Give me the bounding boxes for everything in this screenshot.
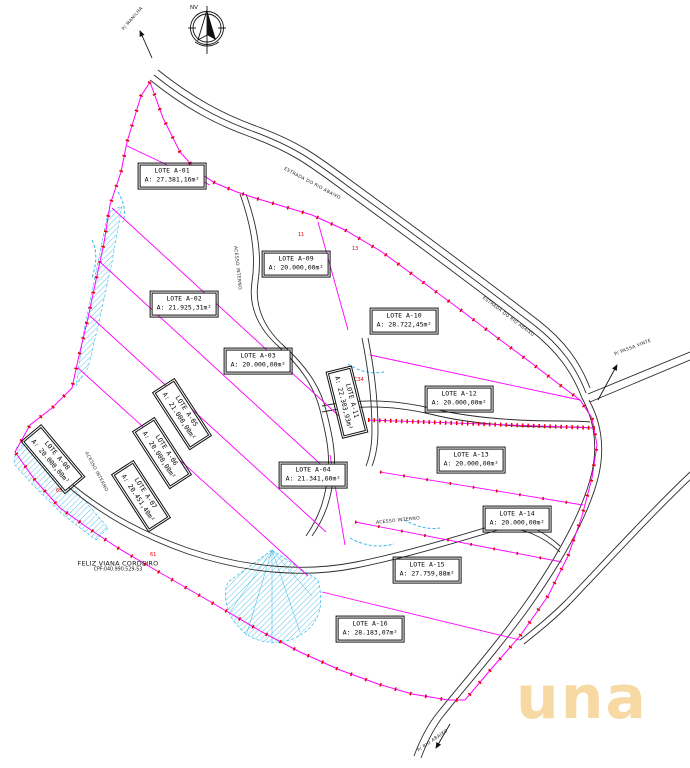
svg-text:13: 13: [352, 246, 358, 252]
svg-text:61: 61: [150, 552, 156, 558]
svg-text:11: 11: [298, 232, 304, 238]
lot-name: LOTE A-16: [343, 620, 398, 629]
road-internal-a11-2: [368, 338, 378, 466]
road-branch-east: [588, 352, 690, 394]
road-main: [150, 80, 582, 398]
lot-area: A: 20.000,00m²: [432, 399, 487, 408]
lot-name: LOTE A-14: [490, 510, 545, 519]
lot-area: A: 20.000,00m²: [444, 460, 499, 469]
lot-name: LOTE A-13: [444, 451, 499, 460]
lot-label-a03: LOTE A-03 A: 20.000,00m²: [226, 350, 291, 373]
lot-label-a15: LOTE A-15 A: 27.759,88m²: [395, 559, 460, 582]
lot-area: A: 20.000,00m²: [269, 264, 324, 273]
lot-area: A: 27.759,88m²: [400, 570, 455, 579]
road-main-2: [154, 75, 586, 393]
lot-area: A: 20.000,00m²: [490, 519, 545, 528]
wetland-areas: [14, 192, 440, 644]
lot-label-a09: LOTE A-09 A: 20.000,00m²: [264, 253, 329, 276]
svg-text:65: 65: [56, 488, 62, 494]
lot-name: LOTE A-15: [400, 561, 455, 570]
wetland-fan: [225, 550, 320, 642]
lot-area: A: 20.000,00m²: [231, 361, 286, 370]
lot-area: A: 21.925,31m²: [157, 304, 212, 313]
lot-area: A: 28.722,45m²: [377, 321, 432, 330]
una-logo: una: [516, 668, 648, 728]
road-southeast: [520, 472, 690, 640]
lot-name: LOTE A-02: [157, 295, 212, 304]
lot-label-a13: LOTE A-13 A: 20.000,00m²: [439, 449, 504, 472]
road-internal-a11: [362, 338, 372, 466]
lot-name: LOTE A-10: [377, 312, 432, 321]
svg-text:C34: C34: [354, 377, 364, 383]
lot-label-a01: LOTE A-01 A: 27.381,16m²: [140, 165, 205, 188]
lot-label-a14: LOTE A-14 A: 20.000,00m²: [485, 508, 550, 531]
north-compass: [188, 6, 226, 54]
wetland-band-upper-left: [76, 206, 122, 386]
lot-name: LOTE A-09: [269, 255, 324, 264]
destination-arrows: [140, 31, 617, 748]
lot-label-a12: LOTE A-12 A: 20.000,00m²: [427, 388, 492, 411]
owner-cpf: CPF:040.990.529-53: [78, 568, 159, 573]
lot-label-a04: LOTE A-04 A: 21.341,60m²: [281, 464, 346, 487]
lot-area: A: 27.381,16m²: [145, 176, 200, 185]
arrow-north: [140, 31, 152, 58]
lot-name: LOTE A-03: [231, 352, 286, 361]
owner-name: FELIZ VIANA CORDEIRO: [78, 560, 159, 568]
lot-name: LOTE A-04: [286, 466, 341, 475]
road-branch-east-2: [590, 360, 690, 402]
lot-label-a10: LOTE A-10 A: 28.722,45m²: [372, 310, 437, 333]
road-main-3: [158, 70, 590, 388]
lot-name: LOTE A-12: [432, 390, 487, 399]
lot-area: A: 21.341,60m²: [286, 475, 341, 484]
survey-map: 1113C346165 LOTE A-01 A: 27.381,16m² LOT…: [0, 0, 690, 768]
compass-label: NV: [190, 5, 198, 11]
lot-label-a02: LOTE A-02 A: 21.925,31m²: [152, 293, 217, 316]
road-southeast-2: [524, 476, 690, 644]
lot-area: A: 28.183,07m²: [343, 629, 398, 638]
lot-label-a16: LOTE A-16 A: 28.183,07m²: [338, 618, 403, 641]
lot-name: LOTE A-01: [145, 167, 200, 176]
owner-annotation: FELIZ VIANA CORDEIRO CPF:040.990.529-53: [78, 560, 159, 573]
